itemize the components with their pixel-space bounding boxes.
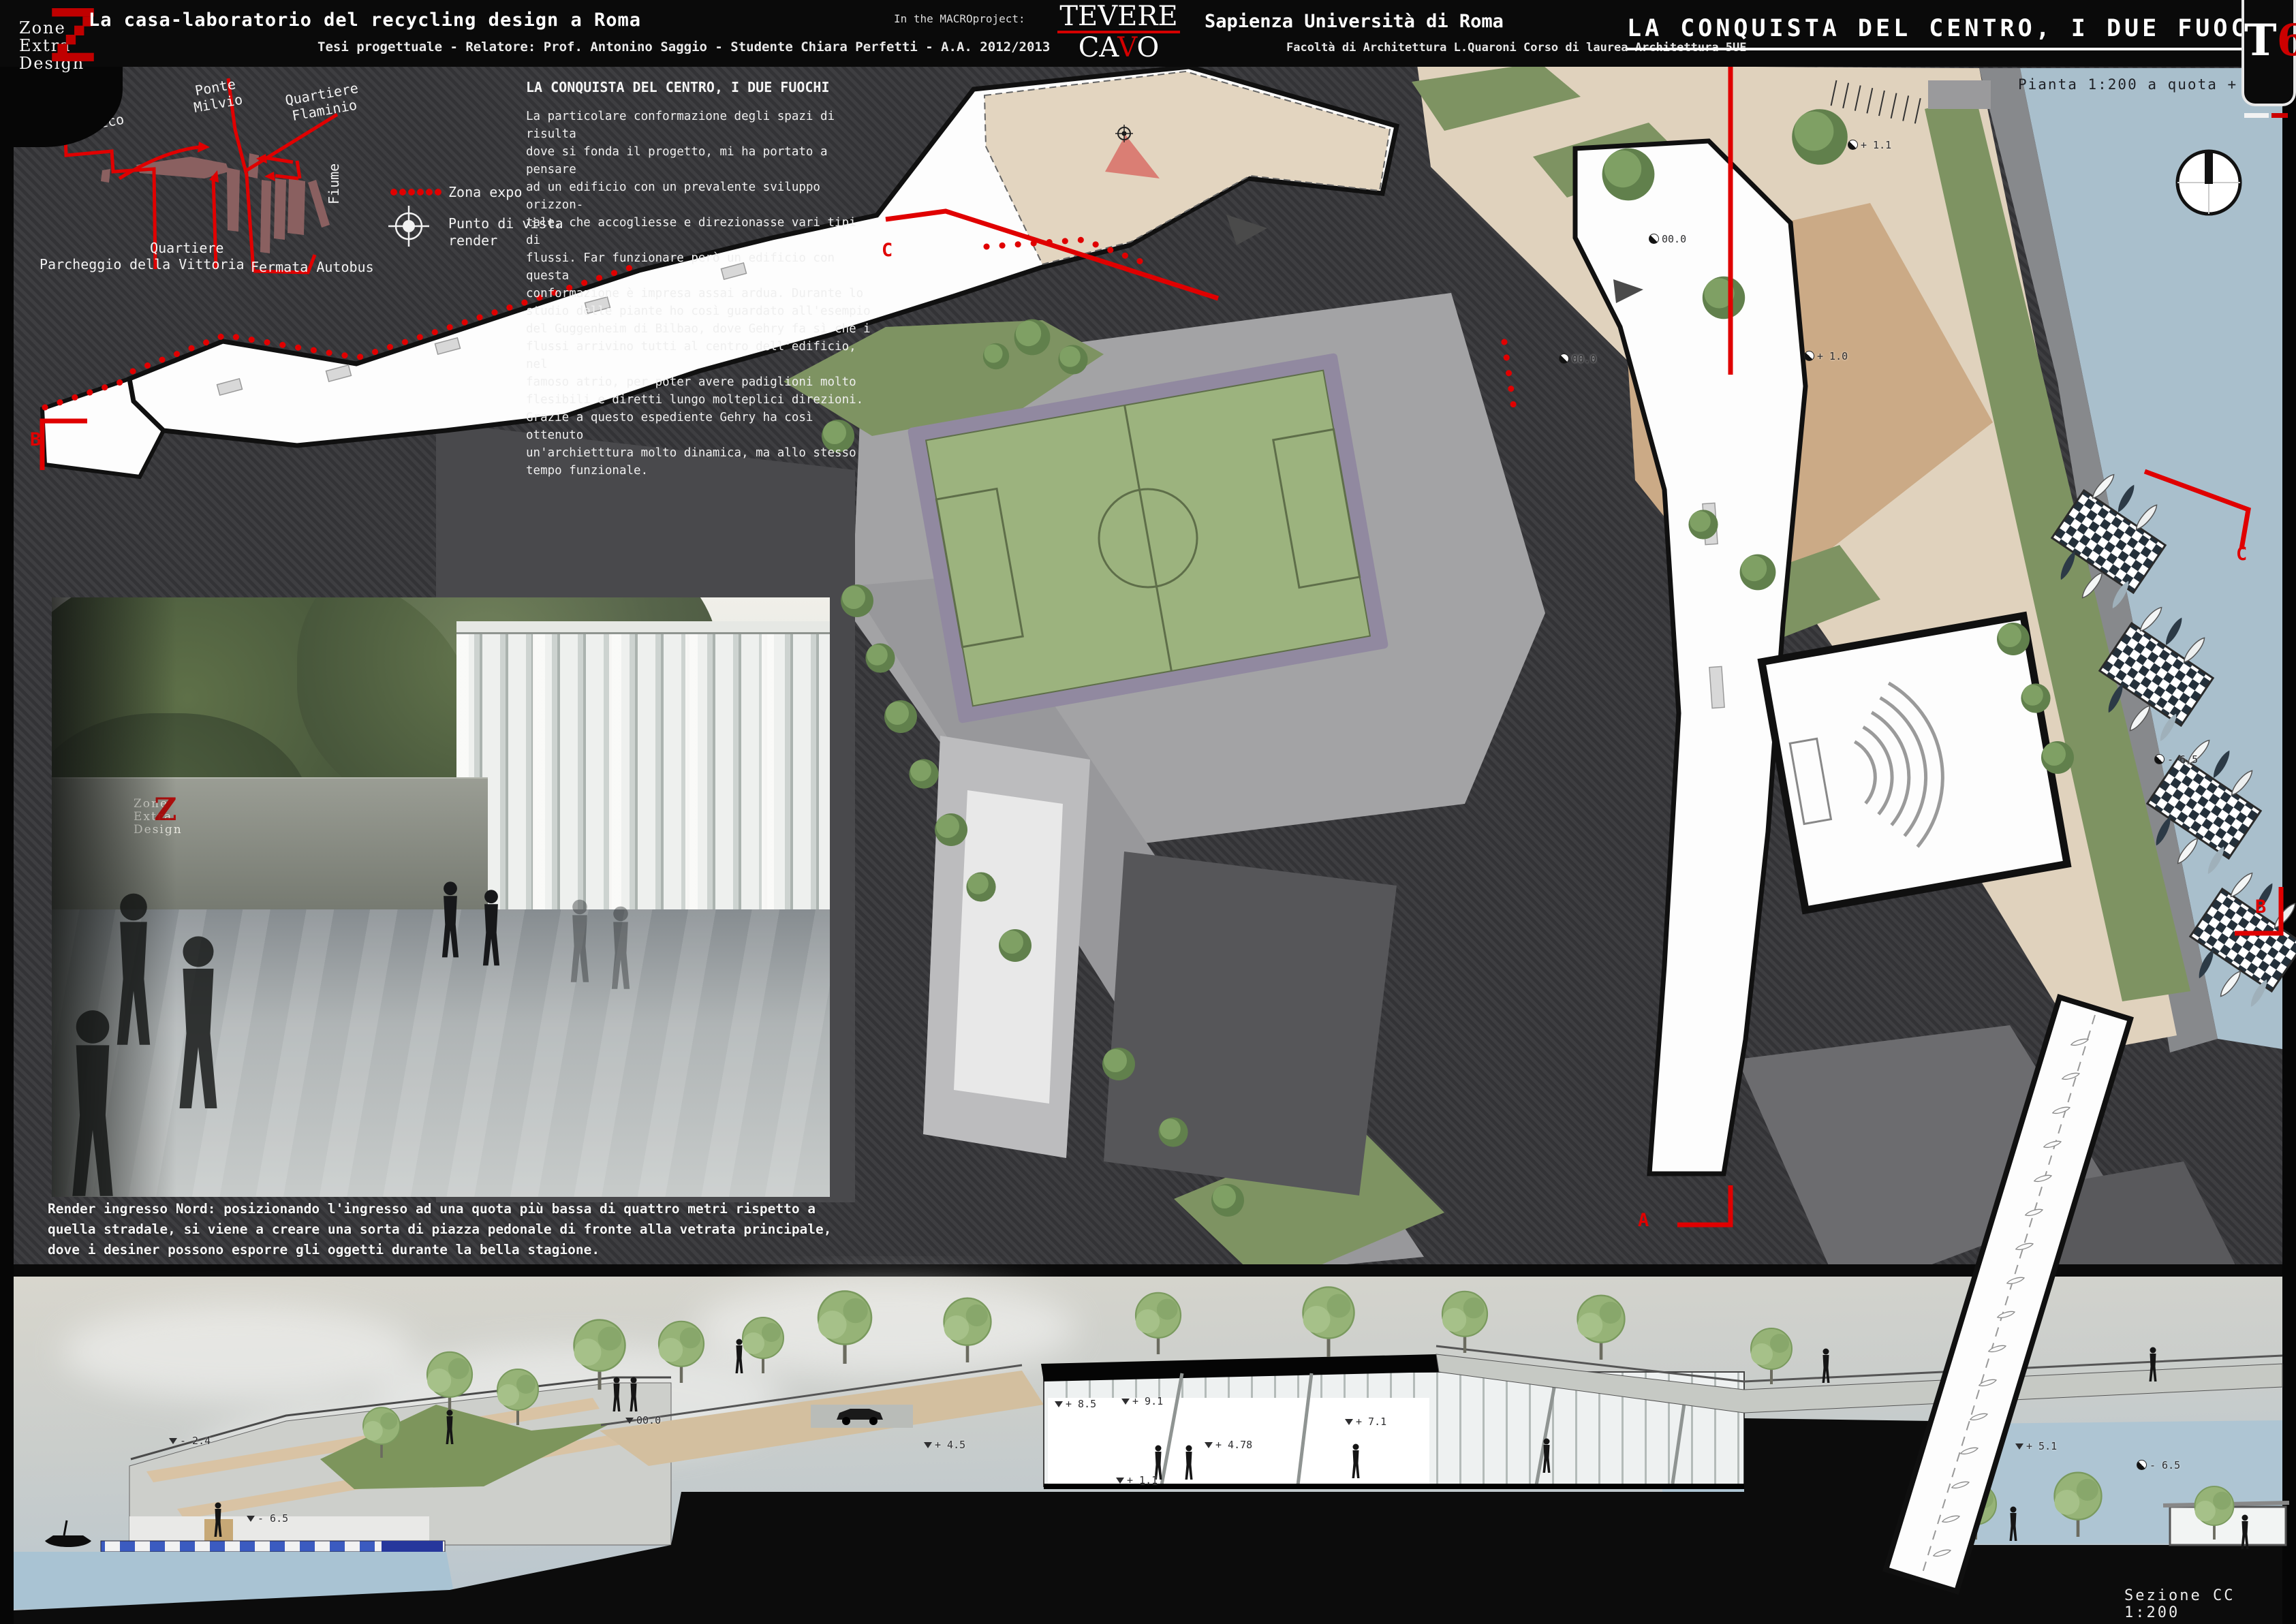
map-label-parcheggio: Parcheggio bbox=[40, 256, 121, 272]
section-marker-b-left: B bbox=[30, 429, 41, 450]
plan-caption: Pianta 1:200 a quota + 1.5 bbox=[2018, 76, 2278, 93]
section-marker-b-right: B bbox=[2255, 896, 2266, 918]
divider-bar bbox=[14, 1264, 2282, 1277]
tevere-cavo-logo: TEVERE CAVO bbox=[1057, 3, 1180, 61]
section-marker-a-bottom: A bbox=[1638, 1210, 1649, 1231]
legend-zona-expo: Zona expo bbox=[448, 184, 522, 201]
plan-level-annotation: 00.0 bbox=[1649, 233, 1686, 245]
board-code-letter: T bbox=[2244, 15, 2277, 66]
section-level-annotation: 00.0 bbox=[625, 1414, 661, 1426]
description-body: La particolare conformazione degli spazi… bbox=[526, 108, 877, 480]
plan-level-annotation: + 1.1 bbox=[1848, 139, 1891, 151]
render-image: ZoneExtraDesign Z bbox=[52, 597, 830, 1197]
zed-logo: Zone Extra Design bbox=[19, 19, 84, 72]
section-level-annotation: + 4.5 bbox=[924, 1439, 965, 1451]
zed-logo-z-icon bbox=[52, 8, 94, 63]
plan-level-annotation: - 6.5 bbox=[2154, 753, 2198, 766]
north-indicator-icon bbox=[2177, 151, 2240, 214]
header-bar: Zone Extra Design La casa-laboratorio de… bbox=[0, 0, 2296, 67]
plan-level-annotation: + 1.0 bbox=[1804, 350, 1848, 362]
map-label-fiume: Fiume bbox=[326, 163, 342, 204]
render-people bbox=[52, 597, 830, 1197]
university-name: Sapienza Università di Roma bbox=[1205, 11, 1504, 32]
tevere-logo-line: TEVERE bbox=[1057, 3, 1180, 30]
board-code-number: 6 bbox=[2277, 15, 2296, 66]
macroproject-label: In the MACROproject: bbox=[894, 12, 1025, 25]
section-level-annotation: + 9.1 bbox=[1121, 1395, 1163, 1407]
section-level-annotation: + 1.1 bbox=[1116, 1474, 1158, 1486]
plan-level-annotation: 00.0 bbox=[1559, 353, 1596, 365]
description-title: LA CONQUISTA DEL CENTRO, I DUE FUOCHI bbox=[526, 79, 830, 95]
section-level-annotation: + 4.78 bbox=[1205, 1439, 1252, 1451]
board-code-badge: T6 bbox=[2241, 0, 2296, 106]
page-title: La casa-laboratorio del recycling design… bbox=[89, 10, 641, 31]
board-title: LA CONQUISTA DEL CENTRO, I DUE FUOCHI bbox=[1627, 15, 2284, 50]
section-caption: Sezione CC 1:200 bbox=[2124, 1587, 2296, 1621]
map-label-fermata-autobus: Fermata Autobus bbox=[251, 259, 374, 275]
presentation-board: Zone Extra Design La casa-laboratorio de… bbox=[0, 0, 2296, 1624]
cavo-logo-line: CAVO bbox=[1057, 34, 1180, 61]
legend-icons bbox=[388, 189, 441, 247]
section-level-annotation: + 8.5 bbox=[1055, 1398, 1096, 1410]
auditorium bbox=[1762, 616, 2067, 910]
section-marker-c-left: C bbox=[882, 240, 893, 261]
thesis-subtitle: Tesi progettuale - Relatore: Prof. Anton… bbox=[317, 40, 1050, 54]
section-marker-c-right: C bbox=[2236, 544, 2247, 565]
board-code-underline bbox=[2244, 113, 2288, 126]
render-caption: Render ingresso Nord: posizionando l'ing… bbox=[48, 1199, 852, 1260]
section-level-annotation: - 6.5 bbox=[247, 1512, 288, 1525]
section-level-annotation: - 2.4 bbox=[169, 1435, 211, 1447]
section-level-annotation: + 5.1 bbox=[2015, 1440, 2057, 1452]
section-level-annotation: - 6.5 bbox=[2137, 1459, 2180, 1471]
map-label-quartiere-vittoria: Quartiere della Vittoria bbox=[129, 240, 245, 272]
section-level-annotation: + 7.1 bbox=[1345, 1416, 1386, 1428]
